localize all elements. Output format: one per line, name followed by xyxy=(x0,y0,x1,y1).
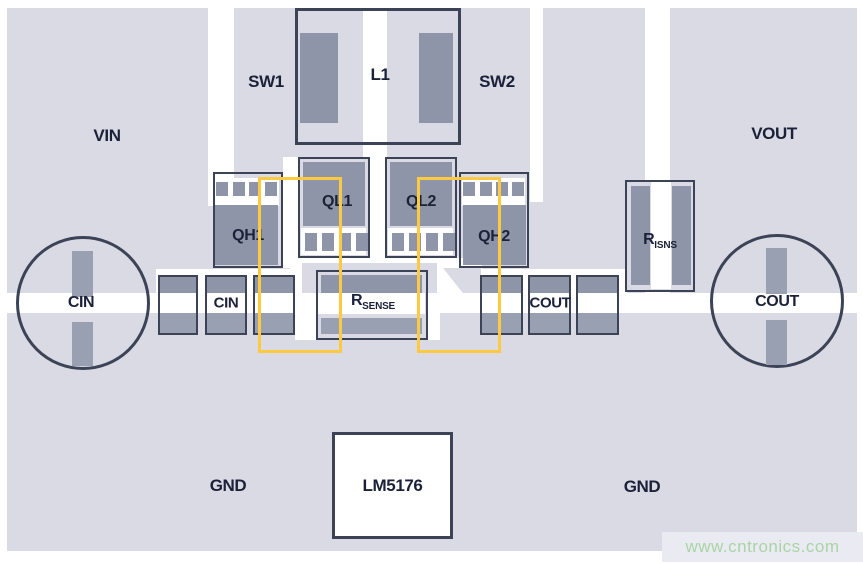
l1-pad-left xyxy=(300,33,338,123)
qh2-pin-pad xyxy=(512,182,524,196)
loop-highlight-right xyxy=(417,177,501,353)
region-label-sw2: SW2 xyxy=(479,72,515,92)
ql2-pin-pad xyxy=(392,233,404,251)
lm5176-label: LM5176 xyxy=(363,476,423,496)
cout-bulk-label: COUT xyxy=(755,293,799,311)
risns-label-base: R xyxy=(643,231,654,248)
pcb-layout-figure: LM5176 VIN VOUT SW1 SW2 GND GND L1 QH1 Q… xyxy=(0,0,863,564)
cin-bulk-pad-bottom xyxy=(72,322,93,366)
watermark-text: www.cntronics.com xyxy=(686,537,840,557)
cin-bulk-label: CIN xyxy=(68,294,94,312)
region-label-sw1: SW1 xyxy=(248,72,284,92)
rsense-label-base: R xyxy=(351,292,362,309)
cout-ceramic-label: COUT xyxy=(530,295,571,312)
trace-gap-ql1-ql2 xyxy=(370,155,385,260)
cin-ceramic-label: CIN xyxy=(214,295,239,312)
trace-gap-sw2-right xyxy=(530,8,543,202)
risns-label-sub: ISNS xyxy=(654,240,677,251)
cout-bulk-pad-bottom xyxy=(766,320,787,365)
cin-bulk-pad-top xyxy=(72,251,93,297)
ql1-pin-pad xyxy=(356,233,368,251)
region-label-gnd-right: GND xyxy=(624,477,661,497)
cin-ceramic-cap xyxy=(158,275,198,335)
qh1-pin-pad xyxy=(216,182,228,196)
l1-label: L1 xyxy=(370,65,389,85)
watermark-strip: www.cntronics.com xyxy=(662,532,863,562)
risns-label: RISNS xyxy=(643,231,677,251)
rsense-label-sub: SENSE xyxy=(362,301,395,312)
qh1-pin-pad xyxy=(233,182,245,196)
l1-pad-right xyxy=(419,33,453,123)
cout-ceramic-cap xyxy=(576,275,619,335)
region-label-vin: VIN xyxy=(93,126,120,146)
cout-bulk-pad-top xyxy=(766,248,787,294)
component-lm5176: LM5176 xyxy=(332,432,453,539)
rsense-label: RSENSE xyxy=(351,292,395,312)
loop-highlight-left xyxy=(258,177,342,353)
region-label-gnd-left: GND xyxy=(210,476,247,496)
region-label-vout: VOUT xyxy=(751,124,797,144)
